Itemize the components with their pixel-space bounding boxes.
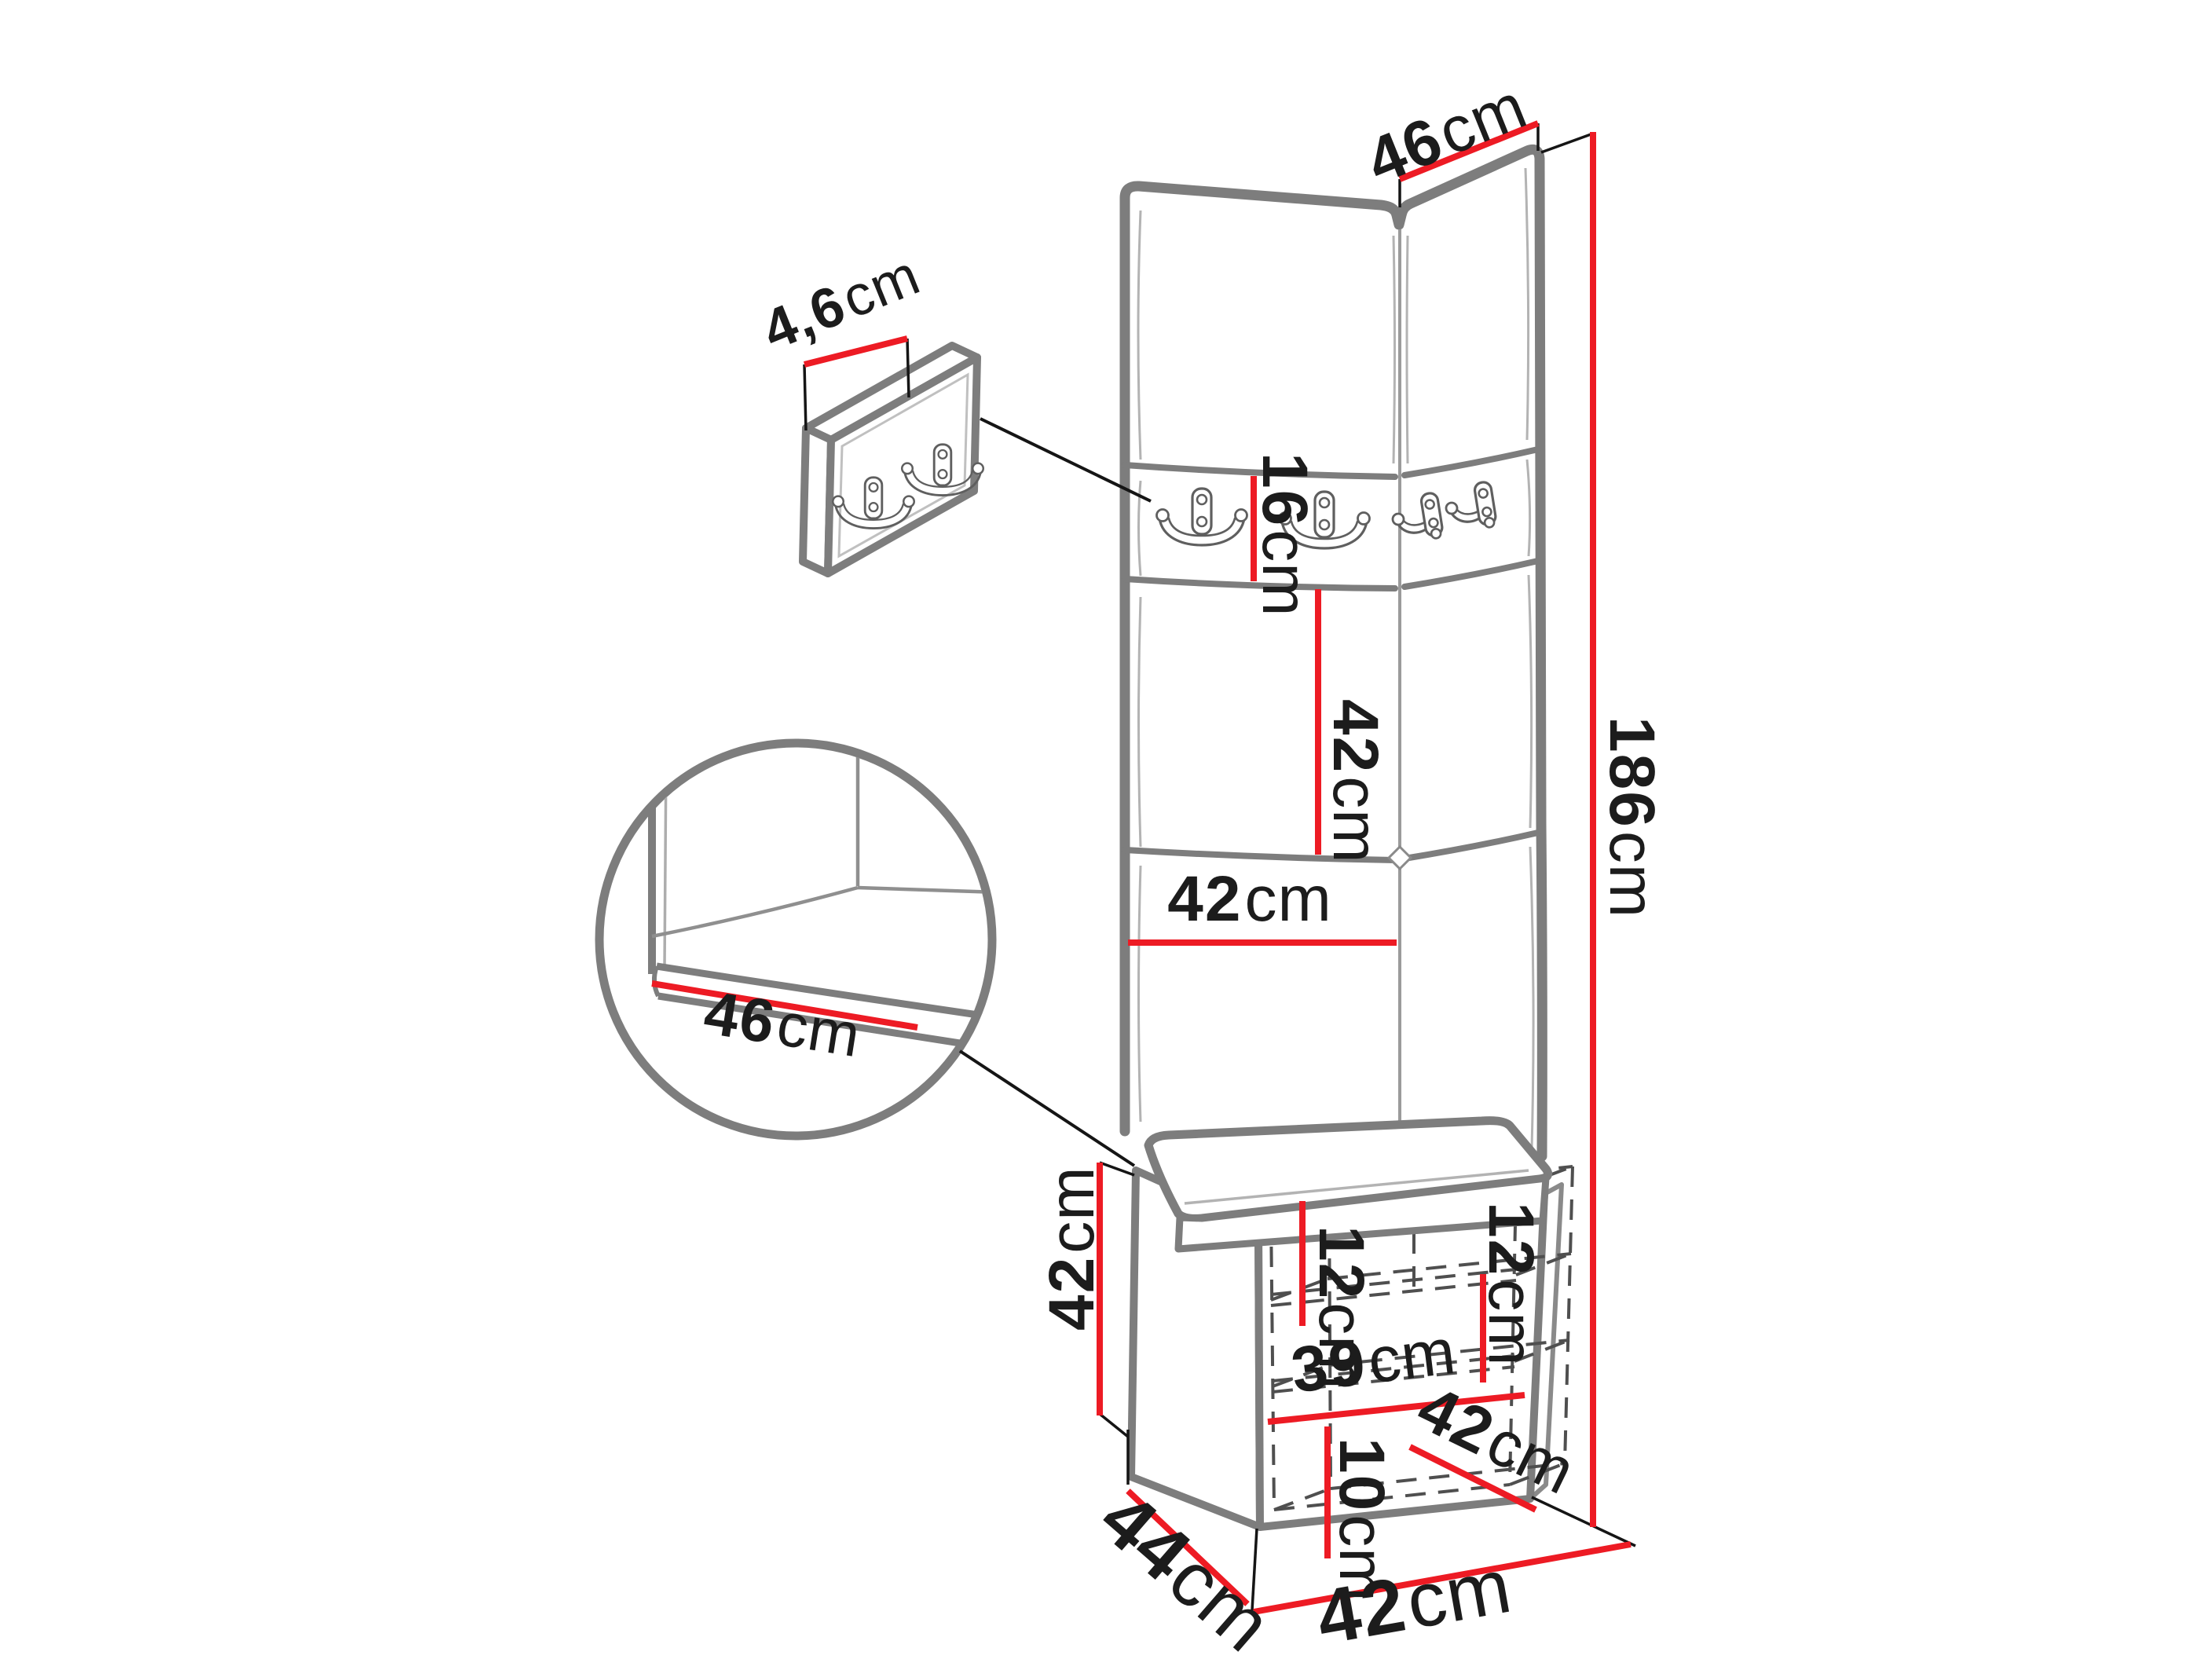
dim-panel-width-label: 42cm (1167, 863, 1332, 935)
dim-hook-strip-label: 16cm (1249, 452, 1320, 617)
wall-hook-panel (803, 346, 983, 573)
diagram-canvas: 46cm 186cm 4,6cm 16cm 42cm 42cm 46cm 42c… (0, 0, 2212, 1659)
detail-pointer-line (960, 1051, 1134, 1166)
corner-panel-unit (1125, 149, 1542, 1172)
dim-mid-panel-height-label: 42cm (1320, 699, 1391, 864)
dim-door-shelf-label: 12cm (1475, 1202, 1547, 1367)
dim-cabinet-height-label: 42cm (1036, 1166, 1108, 1331)
dim-total-height-label: 186cm (1596, 716, 1668, 918)
magnifier-detail-circle (599, 731, 1134, 1166)
dim-panel-thickness-label: 4,6cm (754, 244, 928, 363)
corner-panel-outline (1125, 149, 1542, 1156)
furniture-dimension-diagram: 46cm 186cm 4,6cm 16cm 42cm 42cm 46cm 42c… (0, 0, 2212, 1659)
